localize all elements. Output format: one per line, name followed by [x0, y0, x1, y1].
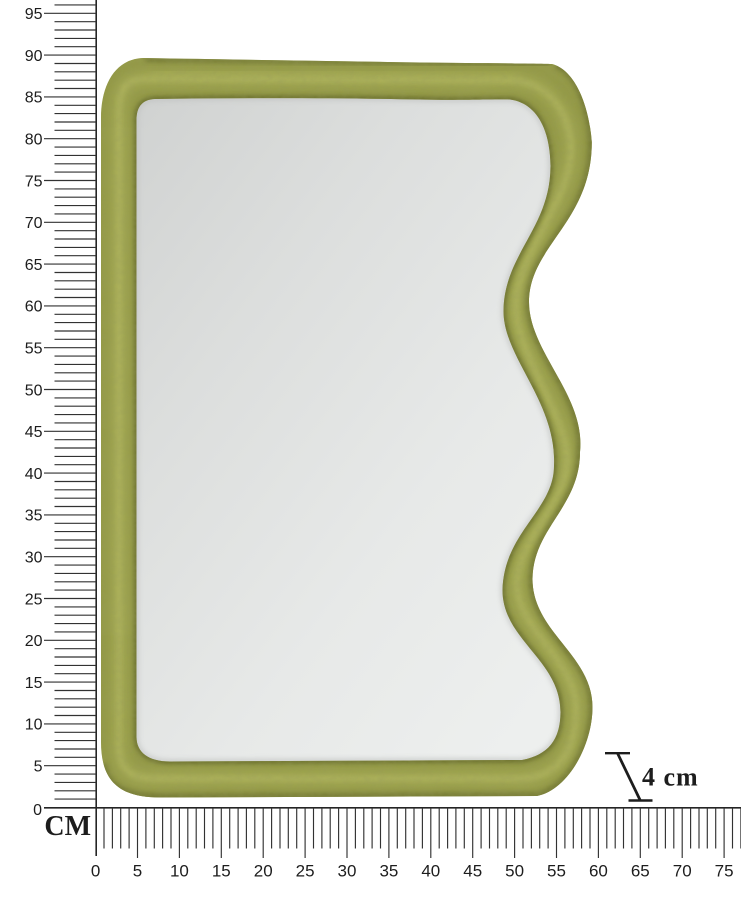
svg-text:65: 65	[25, 257, 43, 274]
svg-text:90: 90	[25, 48, 43, 65]
svg-text:30: 30	[25, 550, 43, 567]
svg-text:75: 75	[715, 862, 734, 881]
svg-text:20: 20	[25, 633, 43, 650]
svg-text:65: 65	[631, 862, 650, 881]
svg-text:55: 55	[25, 341, 43, 358]
svg-text:75: 75	[25, 173, 43, 190]
svg-text:45: 45	[25, 424, 43, 441]
svg-text:15: 15	[25, 675, 43, 692]
svg-text:85: 85	[25, 90, 43, 107]
svg-text:0: 0	[91, 862, 100, 881]
svg-text:5: 5	[133, 862, 142, 881]
svg-text:40: 40	[421, 862, 440, 881]
svg-text:20: 20	[254, 862, 273, 881]
svg-text:50: 50	[25, 382, 43, 399]
svg-text:50: 50	[505, 862, 524, 881]
svg-text:40: 40	[25, 466, 43, 483]
svg-text:5: 5	[34, 759, 43, 776]
svg-text:35: 35	[25, 508, 43, 525]
svg-text:25: 25	[25, 591, 43, 608]
svg-text:95: 95	[25, 6, 43, 23]
svg-text:35: 35	[379, 862, 398, 881]
svg-text:10: 10	[25, 717, 43, 734]
svg-text:CM: CM	[44, 811, 91, 842]
svg-text:45: 45	[463, 862, 482, 881]
svg-text:15: 15	[212, 862, 231, 881]
svg-text:4 cm: 4 cm	[642, 762, 699, 791]
svg-text:10: 10	[170, 862, 189, 881]
svg-text:25: 25	[296, 862, 315, 881]
svg-text:60: 60	[589, 862, 608, 881]
svg-text:60: 60	[25, 299, 43, 316]
svg-text:30: 30	[338, 862, 357, 881]
svg-text:55: 55	[547, 862, 566, 881]
svg-text:0: 0	[33, 802, 42, 819]
svg-text:80: 80	[25, 132, 43, 149]
svg-text:70: 70	[25, 215, 43, 232]
svg-text:70: 70	[673, 862, 692, 881]
